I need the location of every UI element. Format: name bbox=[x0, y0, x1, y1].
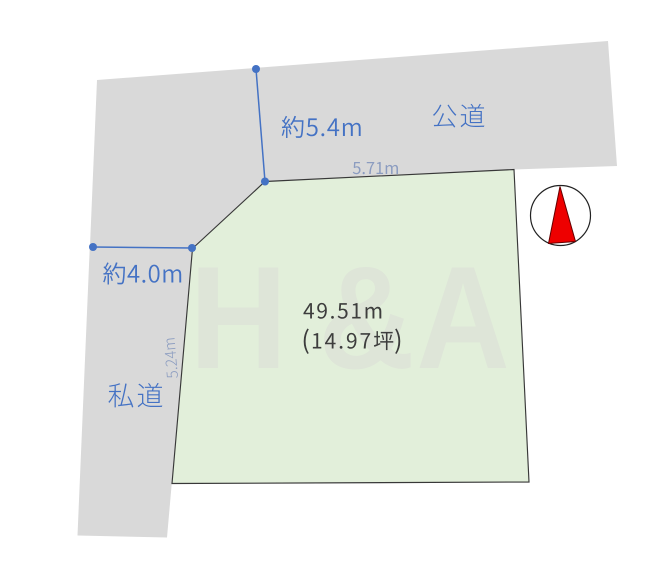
svg-text:A: A bbox=[416, 237, 509, 400]
svg-text:H: H bbox=[189, 235, 287, 399]
